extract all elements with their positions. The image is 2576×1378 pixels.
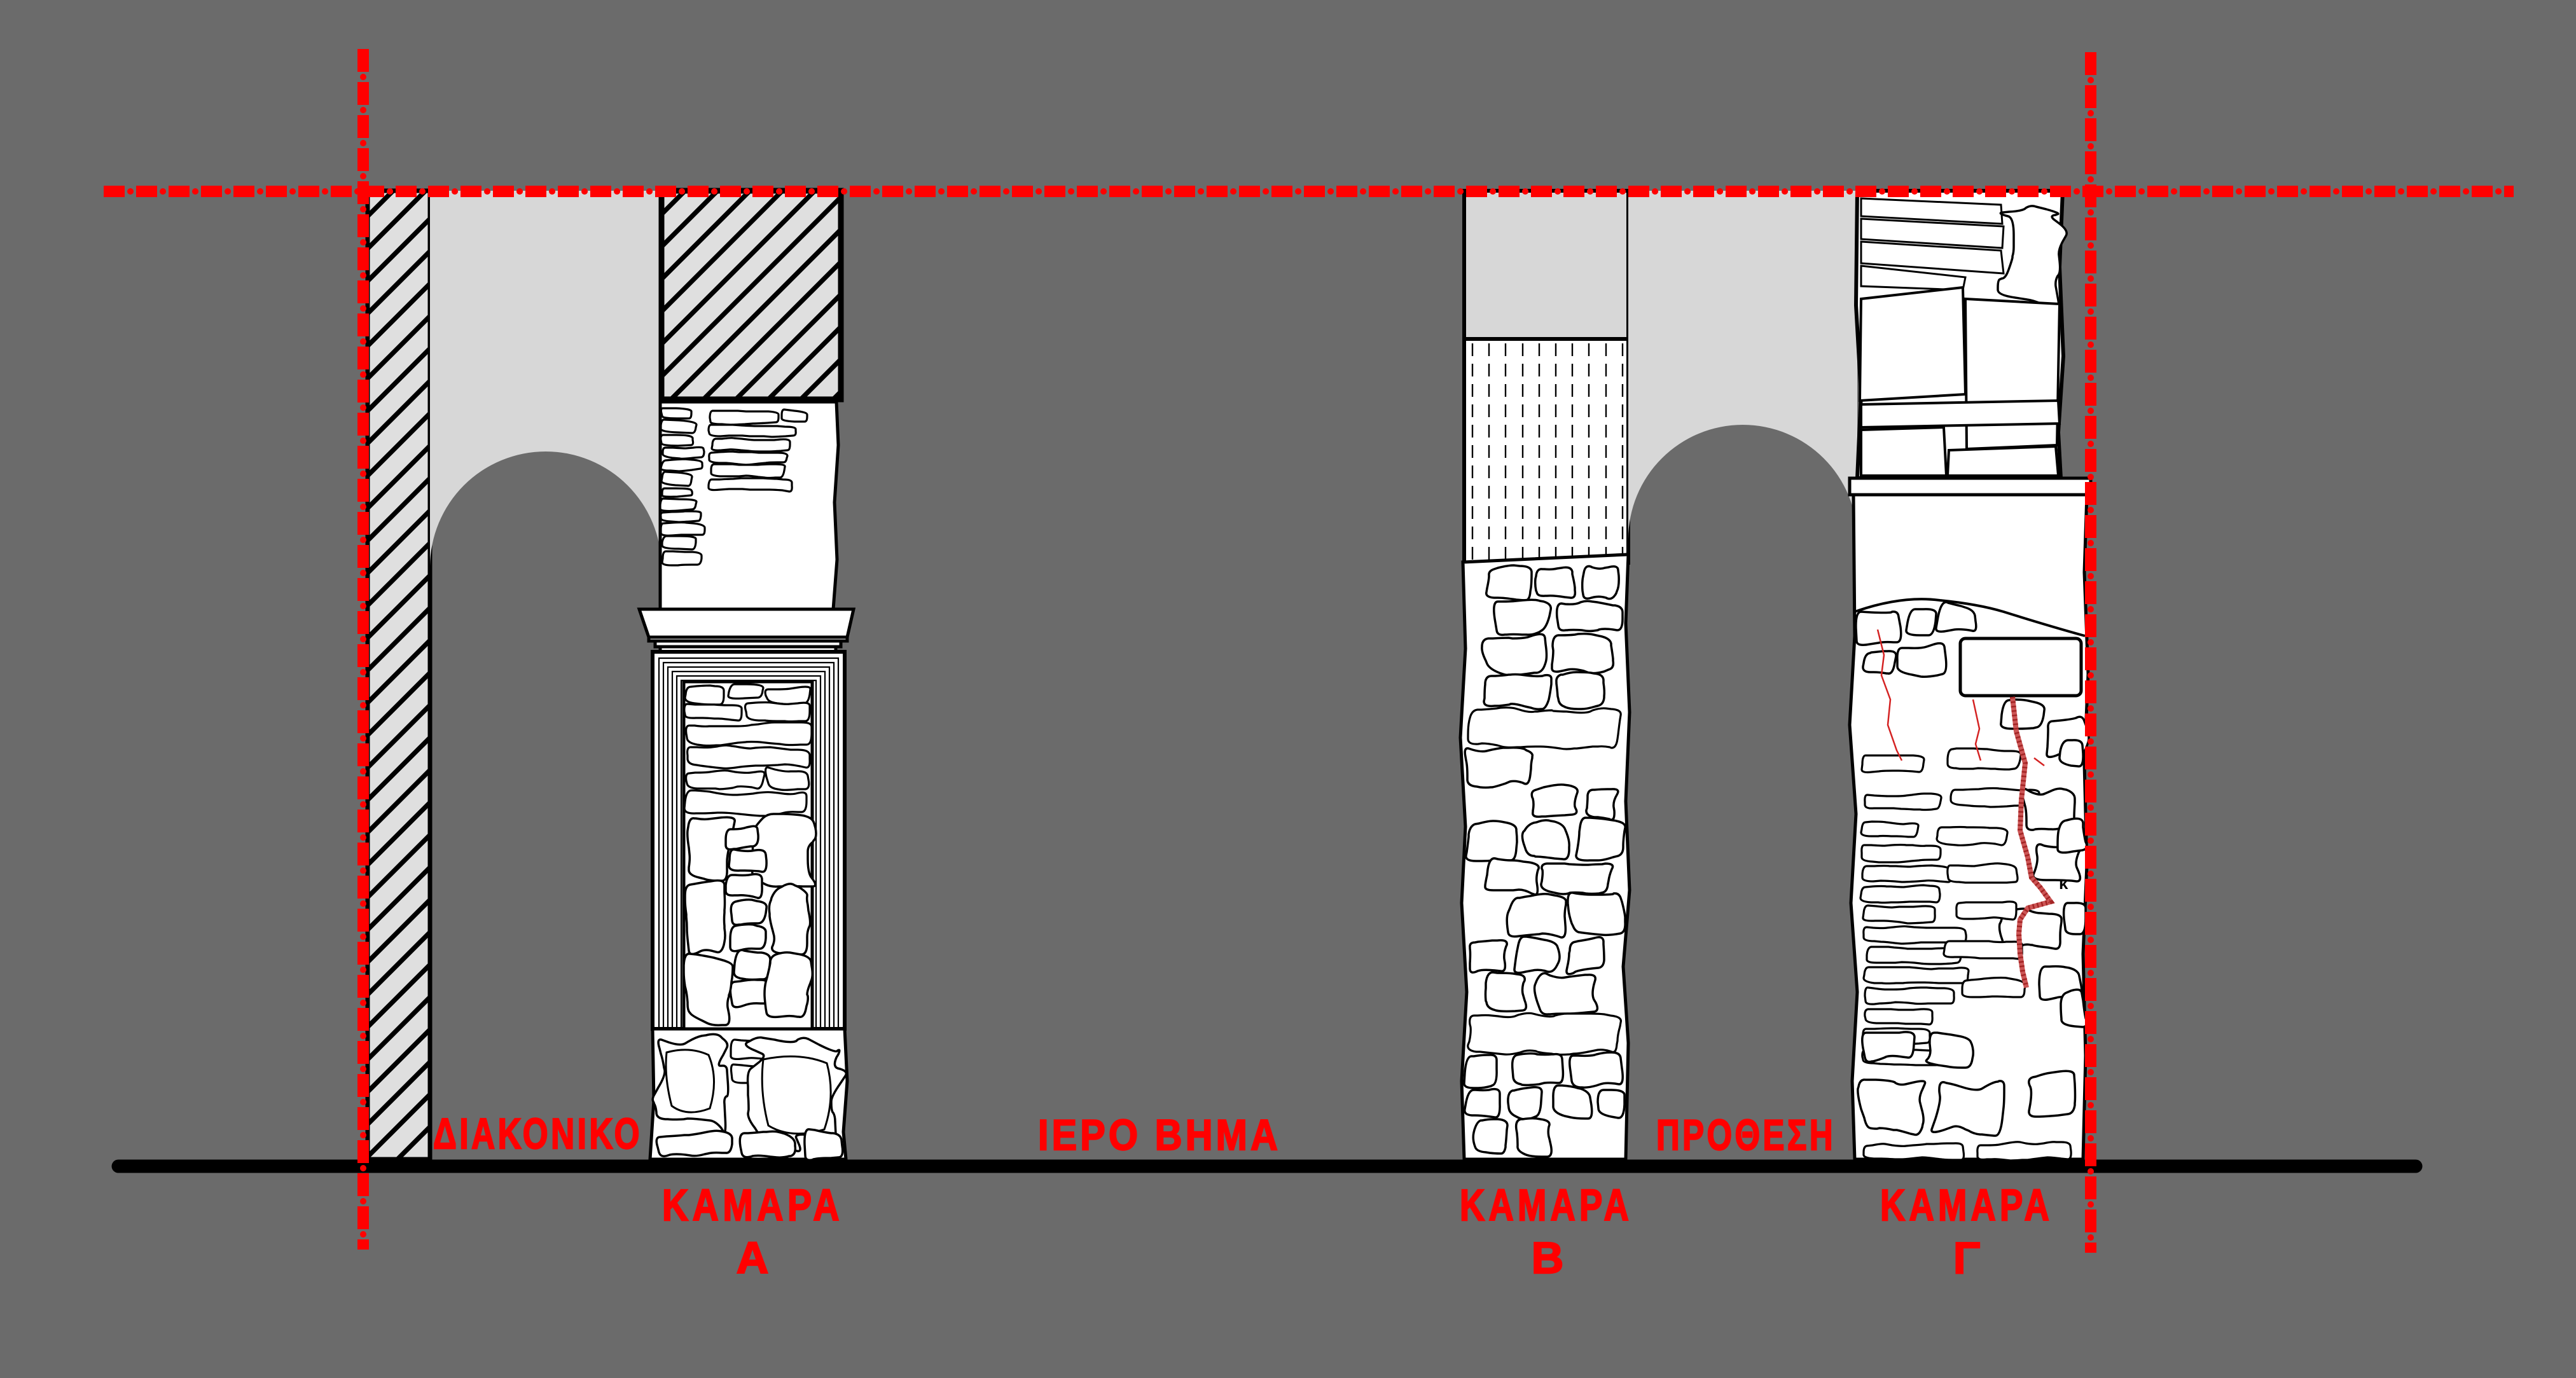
svg-text:κ: κ: [2059, 874, 2068, 893]
svg-text:ΚΑΜΑΡΑ: ΚΑΜΑΡΑ: [1460, 1180, 1633, 1230]
svg-text:ΚΑΜΑΡΑ: ΚΑΜΑΡΑ: [1880, 1180, 2053, 1230]
svg-text:Γ: Γ: [1953, 1233, 1980, 1283]
svg-text:ΔΙΑΚΟΝΙΚΟ: ΔΙΑΚΟΝΙΚΟ: [433, 1110, 642, 1158]
svg-text:Α: Α: [737, 1233, 769, 1283]
svg-text:Β: Β: [1532, 1233, 1564, 1283]
svg-text:ΠΡΟΘΕΣΗ: ΠΡΟΘΕΣΗ: [1656, 1111, 1836, 1159]
svg-text:ΚΑΜΑΡΑ: ΚΑΜΑΡΑ: [662, 1180, 843, 1230]
svg-text:ΙΕΡΟ ΒΗΜΑ: ΙΕΡΟ ΒΗΜΑ: [1038, 1111, 1281, 1159]
